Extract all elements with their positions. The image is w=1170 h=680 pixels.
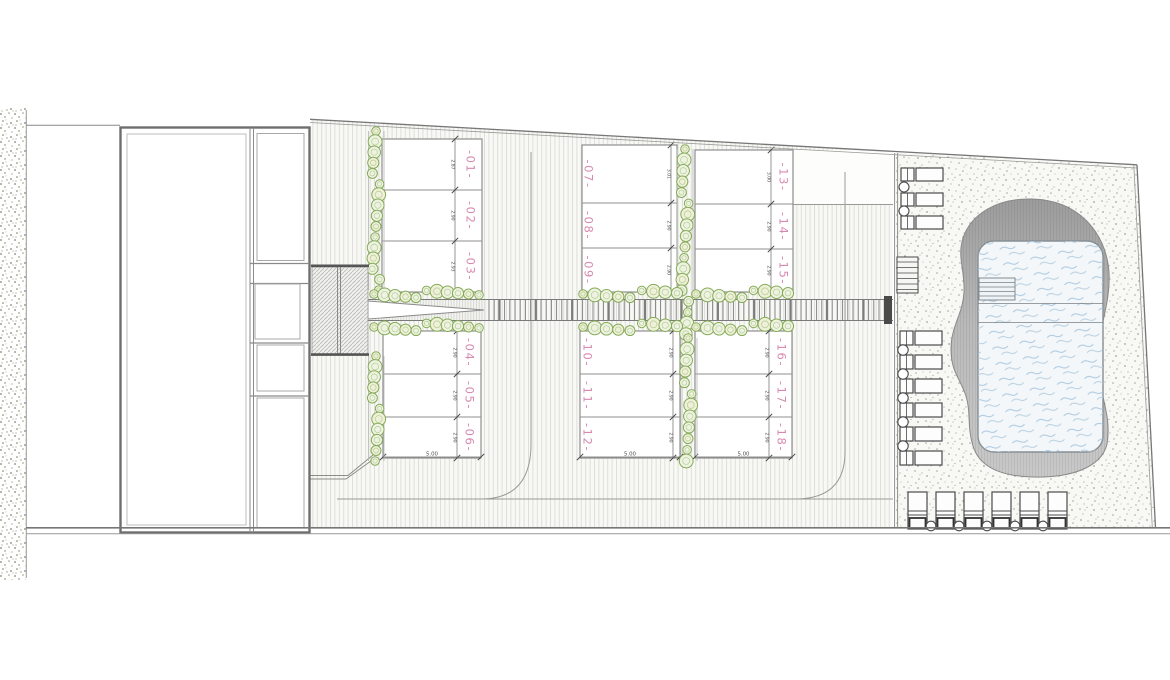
sun-lounger-icon	[1020, 492, 1039, 529]
sun-lounger-icon	[901, 168, 943, 181]
pitch-number-label: -15-	[777, 256, 791, 285]
side-table-icon	[898, 369, 908, 379]
pitch-number-label: -04-	[463, 338, 477, 367]
pitch-depth-dimension: 2.90	[667, 347, 673, 357]
boardwalk-end-post	[884, 296, 892, 324]
sun-lounger-icon	[964, 492, 983, 529]
pitch-width-dimension: 5.00	[426, 451, 439, 457]
sun-lounger-icon	[901, 193, 943, 206]
pitch-depth-dimension: 2.90	[667, 390, 673, 400]
pool-steps-icon	[979, 278, 1015, 300]
sun-lounger-icon	[900, 379, 942, 393]
site-plan-page: -01-2.87-02-2.90-03-2.93-07-3.01-08-2.90…	[0, 0, 1170, 680]
side-table-icon	[954, 521, 964, 531]
sun-lounger-icon	[900, 427, 942, 441]
sun-lounger-icon	[936, 492, 955, 529]
pitch-number-label: -07-	[582, 159, 596, 188]
pitch-depth-dimension: 2.90	[765, 265, 771, 275]
pitch-column-top-middle: -07-3.01-08-2.90-09-2.90	[582, 142, 678, 295]
pitch-number-label: -14-	[777, 212, 791, 241]
pitch-number-label: -13-	[777, 162, 791, 191]
pitch-width-dimension: 5.00	[624, 451, 637, 457]
pitch-number-label: -06-	[463, 423, 477, 452]
side-table-icon	[898, 345, 908, 355]
pitch-depth-dimension: 2.90	[765, 221, 771, 231]
pitch-depth-dimension: 3.00	[765, 172, 771, 182]
pitch-depth-dimension: 2.90	[451, 347, 457, 357]
pitch-depth-dimension: 2.90	[665, 265, 671, 275]
pitch-number-label: -18-	[775, 423, 789, 452]
pitch-number-label: -08-	[582, 211, 596, 240]
pitch-number-label: -01-	[464, 150, 478, 179]
pitch-depth-dimension: 2.93	[449, 261, 455, 271]
pitch-number-label: -17-	[775, 381, 789, 410]
sun-lounger-icon	[900, 403, 942, 417]
pitch-number-label: -05-	[463, 381, 477, 410]
pitch-depth-dimension: 2.90	[667, 432, 673, 442]
side-table-icon	[982, 521, 992, 531]
reception-building	[121, 128, 310, 533]
sun-lounger-icon	[1048, 492, 1067, 529]
sun-lounger-icon	[901, 216, 943, 229]
pitch-column-top-left: -01-2.87-02-2.90-03-2.93	[382, 136, 482, 295]
pitch-number-label: -10-	[581, 338, 595, 367]
towel-rack-icon	[897, 257, 918, 293]
sun-lounger-icon	[908, 492, 927, 529]
pitch-number-label: -03-	[464, 252, 478, 281]
side-table-icon	[1038, 521, 1048, 531]
pitch-column-top-right: -13-3.00-14-2.90-15-2.90	[695, 147, 793, 295]
sun-lounger-icon	[900, 331, 942, 345]
pitch-number-label: -09-	[582, 255, 596, 284]
site-plan-drawing: -01-2.87-02-2.90-03-2.93-07-3.01-08-2.90…	[0, 0, 1170, 680]
sun-lounger-icon	[900, 451, 942, 465]
pitch-depth-dimension: 2.90	[763, 432, 769, 442]
pitch-number-label: -16-	[775, 338, 789, 367]
turning-area	[794, 150, 893, 204]
pitch-depth-dimension: 2.90	[763, 347, 769, 357]
pitch-depth-dimension: 3.01	[665, 169, 671, 179]
roadside-vegetation-strip	[0, 108, 26, 580]
side-table-icon	[1010, 521, 1020, 531]
sun-lounger-icon	[900, 355, 942, 369]
pitch-depth-dimension: 2.90	[451, 390, 457, 400]
pitch-width-dimension: 5.00	[737, 451, 750, 457]
side-table-icon	[898, 393, 908, 403]
sun-lounger-icon	[992, 492, 1011, 529]
entrance-ramp	[311, 266, 369, 355]
pitch-depth-dimension: 2.90	[763, 390, 769, 400]
side-table-icon	[899, 182, 909, 192]
side-table-icon	[898, 441, 908, 451]
pitch-depth-dimension: 2.90	[451, 432, 457, 442]
pitch-number-label: -11-	[581, 381, 595, 410]
pitch-column-bottom-middle: -10-2.90-11-2.90-12-2.905.00	[577, 328, 683, 461]
pitch-number-label: -12-	[581, 423, 595, 452]
pitch-depth-dimension: 2.90	[665, 220, 671, 230]
side-table-icon	[899, 206, 909, 216]
side-table-icon	[898, 417, 908, 427]
pitch-column-bottom-right: -16-2.90-17-2.90-18-2.905.00	[692, 328, 795, 461]
pitch-depth-dimension: 2.90	[449, 210, 455, 220]
pitch-column-bottom-left: -04-2.90-05-2.90-06-2.905.00	[380, 328, 484, 461]
pitch-number-label: -02-	[464, 201, 478, 230]
pitch-depth-dimension: 2.87	[449, 159, 455, 169]
side-table-icon	[926, 521, 936, 531]
